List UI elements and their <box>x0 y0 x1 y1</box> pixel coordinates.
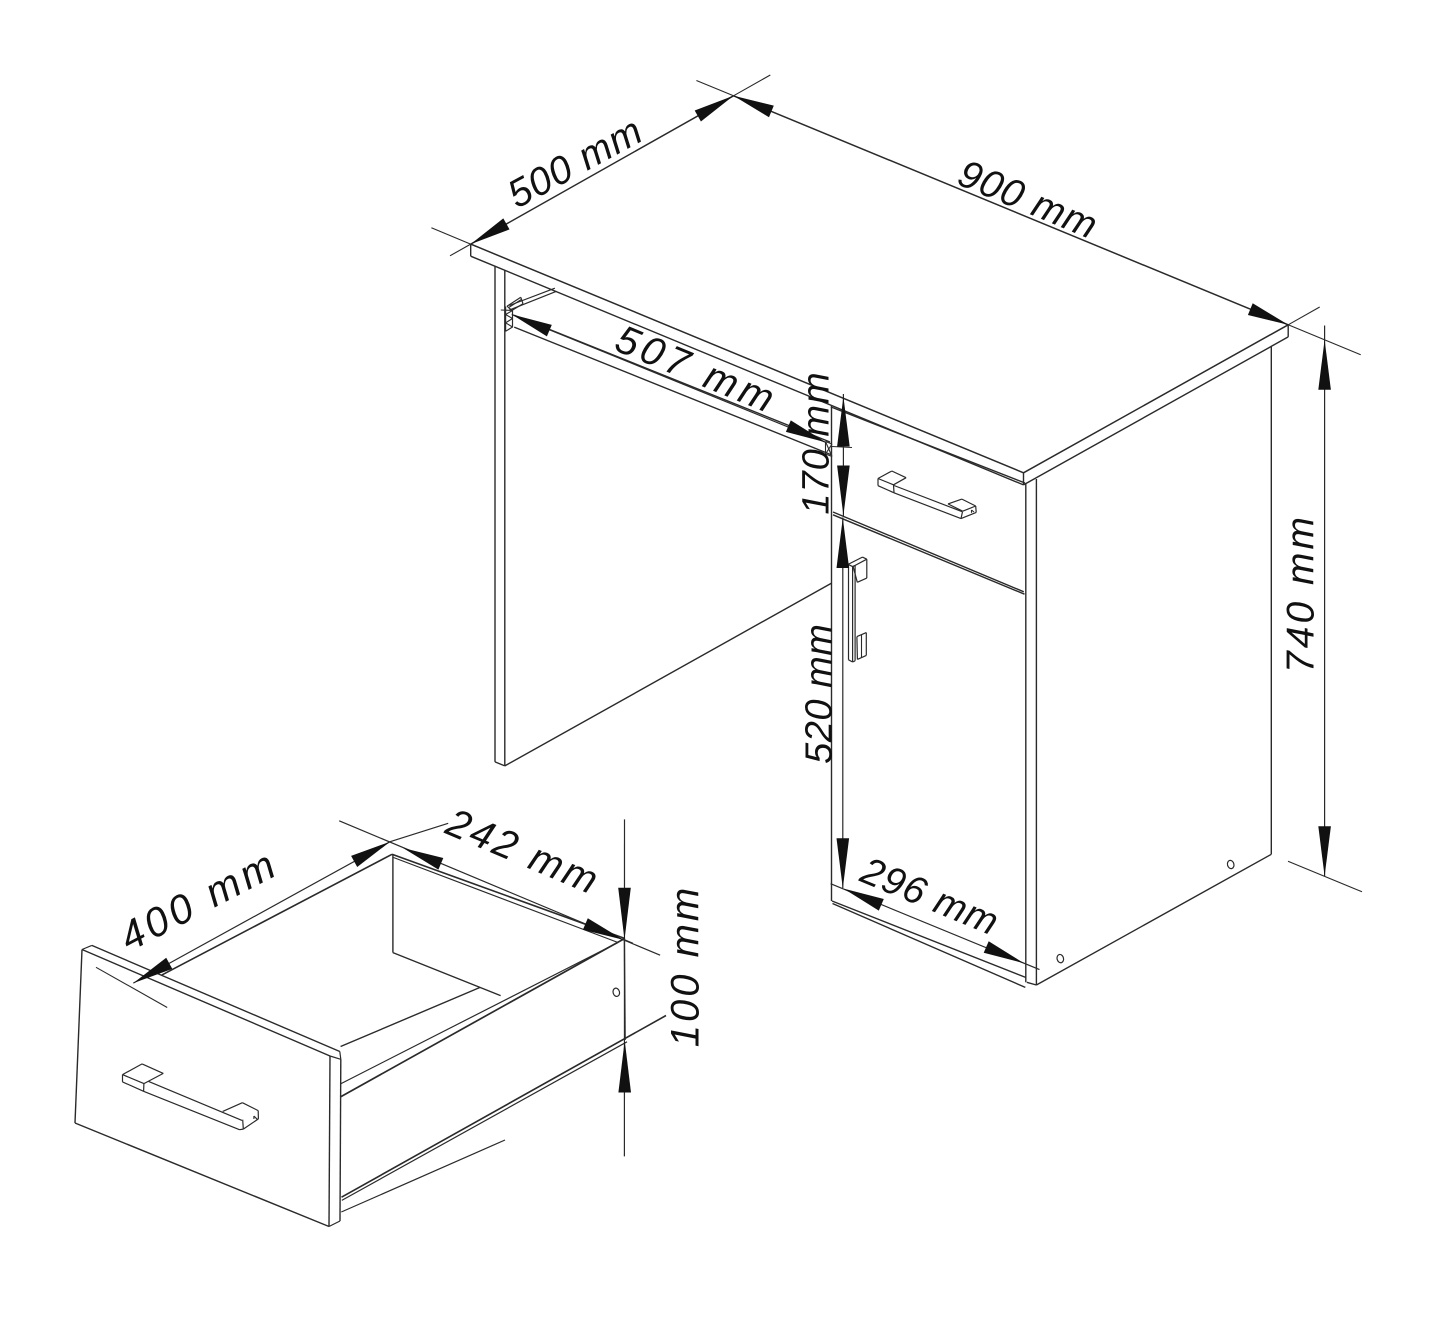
svg-text:100 mm: 100 mm <box>664 885 708 1048</box>
svg-text:170 mm: 170 mm <box>796 371 838 514</box>
svg-text:520 mm: 520 mm <box>798 624 840 764</box>
svg-text:740 mm: 740 mm <box>1279 514 1322 673</box>
